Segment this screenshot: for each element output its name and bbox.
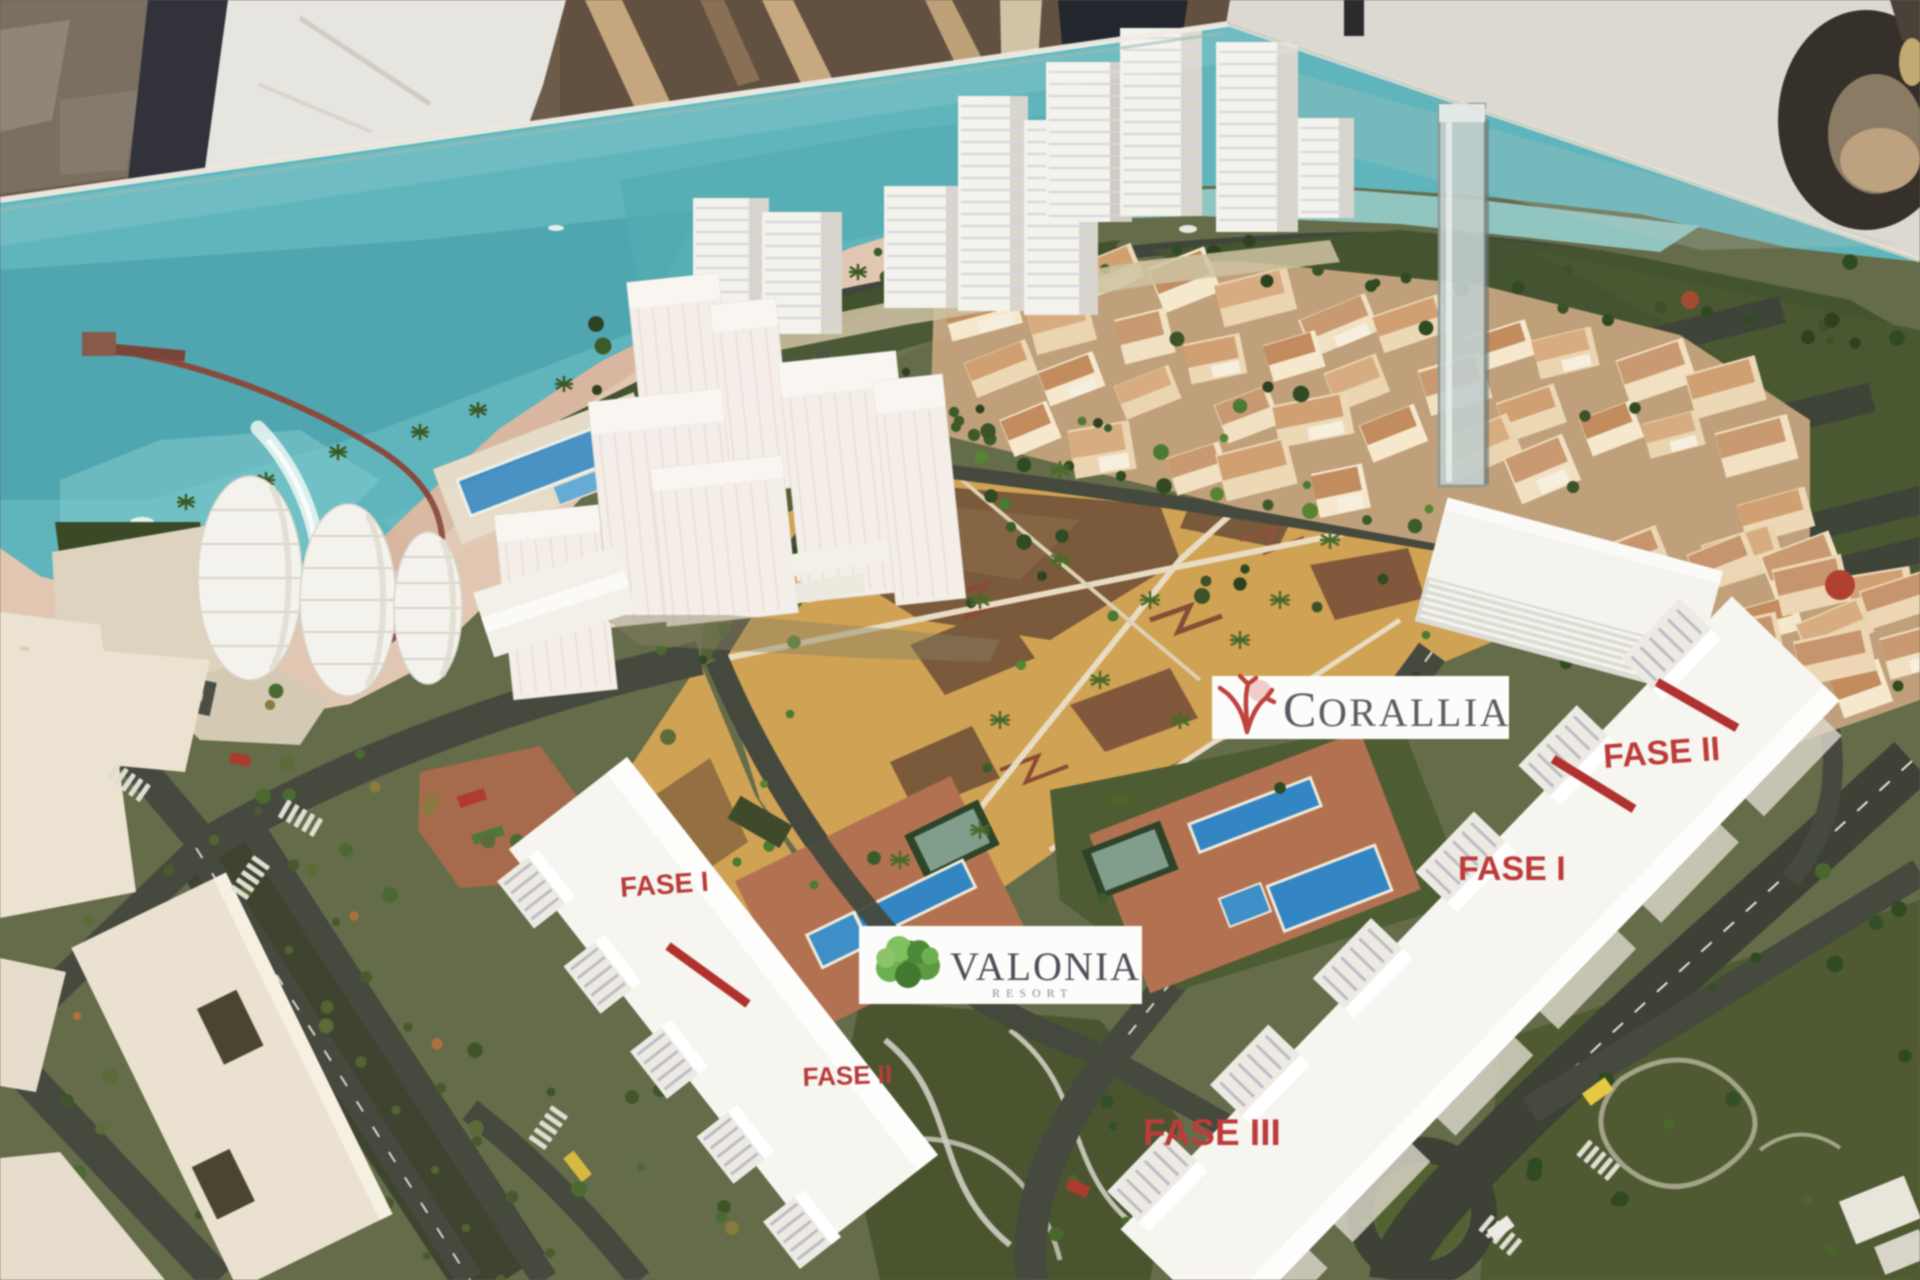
svg-text:FASE II: FASE II <box>802 1059 893 1092</box>
svg-text:FASE III: FASE III <box>1143 1112 1281 1153</box>
svg-text:FASE I: FASE I <box>1458 850 1566 888</box>
svg-text:ORALLIA: ORALLIA <box>1318 690 1511 735</box>
svg-text:RESORT: RESORT <box>992 986 1073 1000</box>
svg-text:C: C <box>1283 681 1316 737</box>
svg-text:VALONIA: VALONIA <box>950 944 1141 989</box>
svg-text:FASE I: FASE I <box>619 866 710 903</box>
